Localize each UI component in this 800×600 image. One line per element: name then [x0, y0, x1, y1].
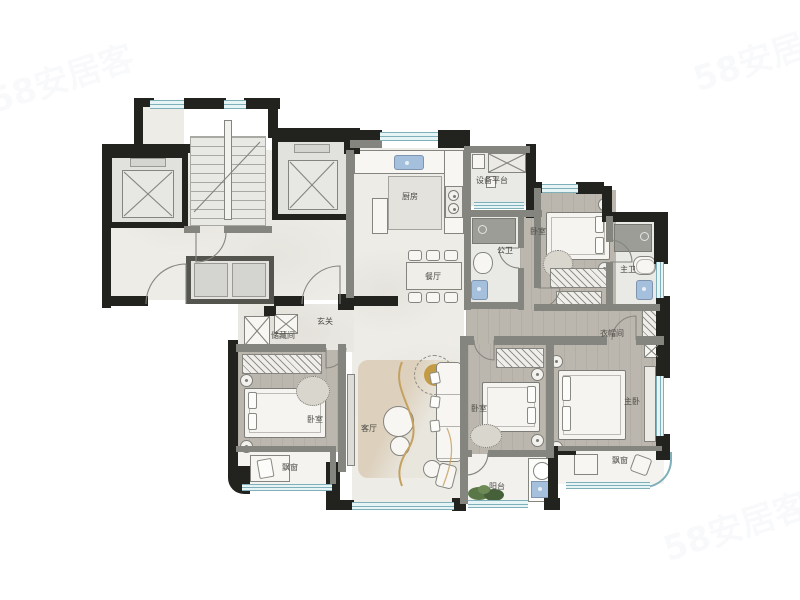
wall-segment — [518, 268, 524, 310]
wall-segment — [236, 344, 326, 352]
wall-segment — [326, 500, 354, 510]
wall-segment — [606, 262, 613, 310]
wall-segment — [606, 216, 613, 242]
room-label-bay-right: 飘窗 — [612, 457, 628, 465]
window — [656, 262, 664, 298]
wall-segment — [348, 296, 398, 306]
window — [242, 484, 332, 491]
wall-segment — [102, 144, 111, 308]
window — [474, 202, 524, 209]
wall-segment — [546, 336, 554, 458]
wall-segment — [350, 140, 382, 148]
room-label-cloakroom: 衣帽间 — [600, 330, 624, 338]
window — [656, 376, 664, 436]
wall-segment — [518, 210, 524, 248]
window — [224, 100, 246, 109]
room-label-entry: 玄关 — [317, 318, 333, 326]
wall-segment — [228, 340, 238, 472]
wall-segment — [544, 498, 560, 510]
wall-segment — [236, 446, 336, 452]
window — [468, 500, 528, 508]
room-label-dining: 餐厅 — [425, 273, 441, 281]
wall-segment — [330, 452, 336, 484]
room-label-kitchen: 厨房 — [402, 193, 418, 201]
wall-segment — [464, 210, 526, 217]
wall-segment — [102, 144, 190, 153]
window — [352, 502, 454, 510]
room-label-master-bath: 主卫 — [620, 266, 636, 274]
wall-segment — [464, 210, 471, 310]
window — [380, 132, 438, 141]
wall-segment — [346, 150, 354, 298]
room-label-bedroom-left: 卧室 — [307, 416, 323, 424]
wall-segment — [338, 344, 346, 472]
wall-segment — [184, 98, 226, 109]
room-label-bedroom-top: 卧室 — [530, 228, 546, 236]
wall-segment — [636, 336, 664, 345]
wall-segment — [494, 336, 550, 345]
floor-plan: 58安居客 58安居客 58安居客 — [0, 0, 800, 600]
wall-segment — [460, 336, 468, 504]
room-label-guest-bath: 公卫 — [497, 247, 513, 255]
wall-segment — [462, 450, 472, 457]
wall-segment — [606, 304, 660, 311]
wall-segment — [576, 182, 604, 194]
room-label-bay-left: 飘窗 — [282, 464, 298, 472]
wall-segment — [224, 226, 272, 233]
room-label-storage: 储藏间 — [271, 332, 295, 340]
wall-segment — [464, 302, 522, 309]
wall-segment — [274, 128, 352, 138]
wall-segment — [464, 146, 471, 212]
window — [150, 100, 184, 109]
wall-segment — [545, 336, 607, 345]
room-label-living: 客厅 — [361, 425, 377, 433]
window — [566, 482, 650, 489]
room-label-bedroom-mid: 卧室 — [471, 405, 487, 413]
window — [542, 184, 578, 193]
wall-segment — [102, 296, 148, 306]
wall-segment — [466, 146, 530, 153]
room-label-equipment-platform: 设备平台 — [476, 177, 508, 185]
wall-segment — [534, 188, 541, 288]
wall-segment — [654, 212, 668, 264]
wall-segment — [558, 446, 662, 451]
wall-segment — [488, 450, 550, 457]
wall-segment — [274, 296, 304, 306]
room-label-master-bedroom: 主卧 — [624, 398, 640, 406]
wall-segment — [264, 306, 276, 316]
room-label-balcony: 阳台 — [489, 483, 505, 491]
wall-segment — [184, 226, 200, 233]
